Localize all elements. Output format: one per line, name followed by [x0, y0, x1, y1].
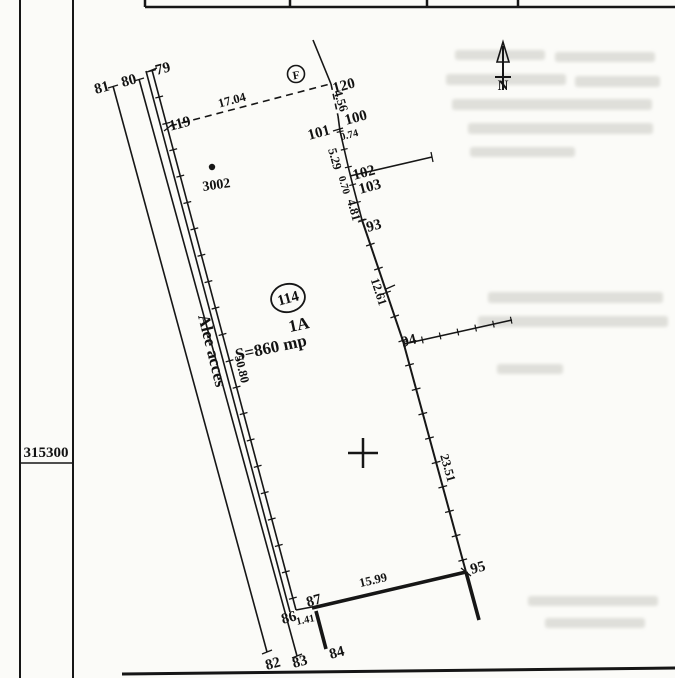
grid-coordinate-label: 315300: [24, 445, 69, 461]
point-tick-101: [333, 128, 343, 131]
distance-label-15-99: 15.99: [358, 570, 389, 590]
landmark-label-3002: 3002: [202, 176, 232, 195]
point-label-84: 84: [328, 643, 347, 662]
bottom-frame-line: [122, 668, 675, 674]
point-label-87: 87: [305, 591, 324, 610]
access-road: Alee acces 50.80: [108, 68, 302, 658]
boundary-above-120: [313, 40, 331, 84]
road-name-label: Alee acces: [194, 312, 230, 389]
boundary-87-95-wall: [312, 572, 466, 608]
plan-drawing: 315300 Alee acces 50.80: [0, 0, 675, 678]
survey-cross: [348, 438, 378, 468]
point-label-83: 83: [291, 652, 310, 671]
distance-label-0-70: 0.70: [336, 175, 352, 196]
boundary-87-84-wall: [316, 611, 326, 649]
point-label-94: 94: [400, 331, 419, 350]
point-label-79: 79: [154, 59, 173, 78]
distance-label-0-74: 0.74: [339, 128, 360, 144]
point-label-81: 81: [93, 78, 112, 97]
cadastral-plan-scan: 315300 Alee acces 50.80: [0, 0, 675, 678]
point-label-93: 93: [365, 216, 384, 235]
point-label-100: 100: [343, 107, 369, 128]
landmark-dot: [209, 164, 215, 170]
point-label-119: 119: [167, 114, 192, 135]
boundary-fence-ticks-93-95: [362, 220, 466, 572]
point-label-80: 80: [120, 71, 139, 90]
grid-cross-icon: [348, 438, 378, 468]
dashed-boundary-119-120: [170, 84, 330, 126]
north-letter: N: [498, 78, 509, 94]
neighbour-line-at-94: [404, 320, 512, 344]
north-arrow: N: [495, 42, 511, 94]
bleed-through-artifacts: [446, 50, 668, 628]
distance-label-12-61: 12.61: [368, 276, 390, 307]
boundary-below-95: [466, 572, 479, 620]
circled-letter-f: F: [292, 69, 301, 82]
parcel-number-label: 114: [276, 288, 302, 309]
small-tick-mark: [386, 285, 395, 289]
point-label-95: 95: [469, 558, 488, 577]
boundary-93-95: [362, 220, 466, 572]
point-label-101: 101: [306, 122, 332, 143]
distance-label-1-41: 1.41: [295, 613, 315, 628]
parcel-area-label: S=860 mp: [233, 331, 308, 365]
